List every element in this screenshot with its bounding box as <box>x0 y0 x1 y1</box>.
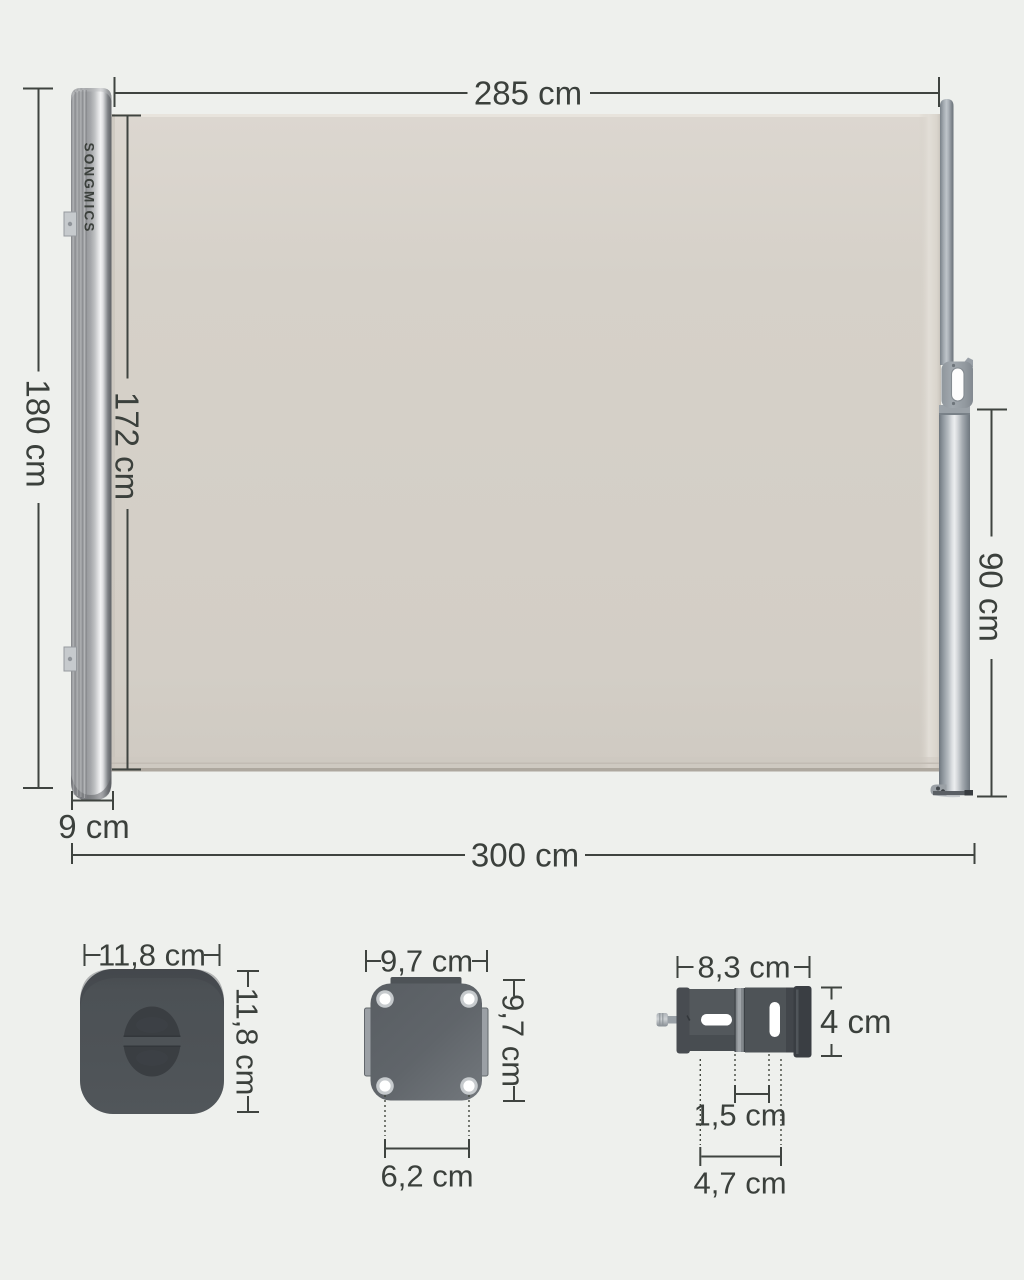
svg-text:180 cm: 180 cm <box>20 379 57 487</box>
svg-text:SONGMICS: SONGMICS <box>82 143 97 234</box>
svg-text:4,7 cm: 4,7 cm <box>693 1166 786 1201</box>
svg-text:6,2 cm: 6,2 cm <box>380 1159 473 1194</box>
svg-text:9,7 cm: 9,7 cm <box>496 994 531 1087</box>
svg-text:8,3 cm: 8,3 cm <box>697 950 790 985</box>
svg-text:285 cm: 285 cm <box>474 75 582 112</box>
svg-text:1,5 cm: 1,5 cm <box>693 1098 786 1133</box>
svg-text:9 cm: 9 cm <box>58 808 130 845</box>
svg-text:172 cm: 172 cm <box>109 392 146 500</box>
svg-text:300 cm: 300 cm <box>471 837 579 874</box>
svg-text:11,8 cm: 11,8 cm <box>230 988 265 1096</box>
svg-text:4 cm: 4 cm <box>820 1003 892 1040</box>
svg-text:90 cm: 90 cm <box>973 552 1010 642</box>
svg-text:11,8 cm: 11,8 cm <box>98 938 206 973</box>
svg-text:9,7 cm: 9,7 cm <box>380 944 473 979</box>
